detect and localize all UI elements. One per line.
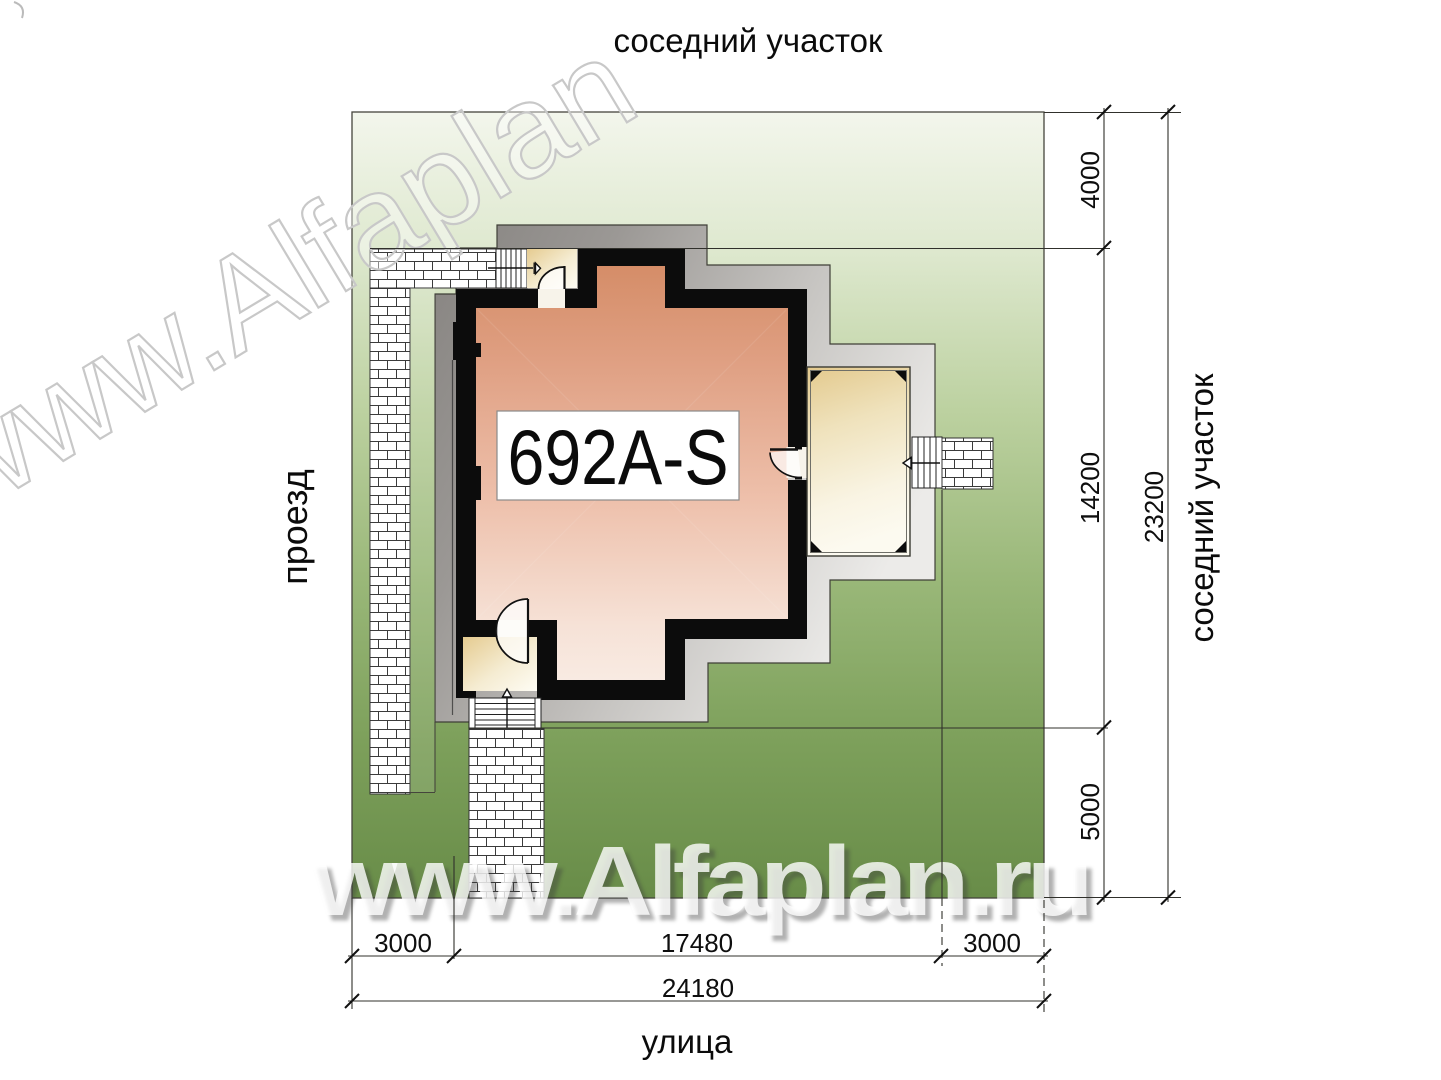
svg-text:4000: 4000 xyxy=(1075,151,1105,209)
svg-text:улица: улица xyxy=(642,1023,733,1060)
svg-text:www.Alfaplan.ru: www.Alfaplan.ru xyxy=(311,827,1089,936)
svg-text:14200: 14200 xyxy=(1075,452,1105,524)
svg-text:3000: 3000 xyxy=(963,928,1021,958)
svg-text:5000: 5000 xyxy=(1075,783,1105,841)
svg-text:692A-S: 692A-S xyxy=(507,414,728,501)
svg-text:соседний участок: соседний участок xyxy=(1183,373,1220,643)
svg-text:24180: 24180 xyxy=(662,973,734,1003)
svg-text:17480: 17480 xyxy=(661,928,733,958)
svg-text:23200: 23200 xyxy=(1139,471,1169,543)
svg-text:3000: 3000 xyxy=(374,928,432,958)
svg-text:соседний участок: соседний участок xyxy=(614,22,884,59)
svg-text:проезд: проезд xyxy=(274,469,315,585)
